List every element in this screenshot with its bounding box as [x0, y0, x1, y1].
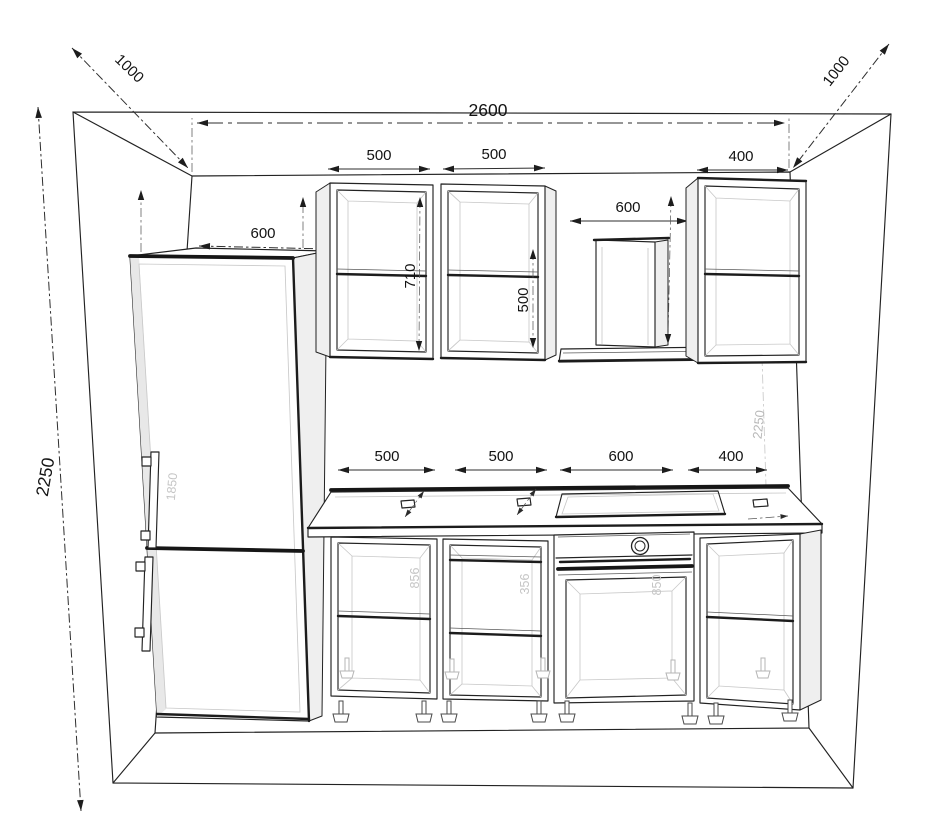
leg	[708, 703, 724, 724]
dimension-upper-cabinet-3-width: 400	[697, 148, 788, 170]
dim-extension-fridge	[141, 192, 303, 252]
base-cabinet-4	[700, 530, 821, 710]
fridge-top-edge	[130, 256, 293, 258]
hood-chimney-side	[655, 240, 668, 347]
dimension-fridge-width: 600	[138, 190, 328, 252]
dim-base-4-label: 400	[718, 448, 743, 465]
dimension-depth-left: 1000	[72, 48, 188, 168]
hood-chimney-top-edge	[594, 238, 669, 240]
dim-extension-lines-room-width	[192, 118, 789, 172]
dim-upper-2-height-label: 500	[515, 287, 532, 312]
dim-upper-2-label: 500	[481, 146, 506, 163]
oven-cabinet-ghost-label: 850	[650, 575, 664, 596]
leg	[531, 701, 547, 722]
kitchen-elevation-drawing: 1000 1000 2600 2250 2250	[0, 0, 943, 833]
dimension-upper-cabinet-1-width: 500	[328, 147, 430, 169]
dimension-base-row: 500 500 600 400	[338, 448, 767, 470]
dim-hood-label: 600	[615, 199, 640, 216]
dim-room-height-right-label: 2250	[750, 409, 768, 439]
oven-knob-inner	[635, 541, 645, 551]
base-cabinet-1-ghost-label: 856	[408, 568, 422, 589]
dim-base-2-label: 500	[488, 448, 513, 465]
upper-cabinet-3	[686, 178, 806, 363]
base-cabinet-2: 356	[443, 539, 548, 701]
leg	[682, 703, 698, 724]
dim-depth-right-label: 1000	[819, 53, 853, 90]
dim-upper-1-height-label: 710	[402, 263, 419, 288]
dimension-upper-cabinet-2-width: 500	[443, 146, 545, 169]
fridge-niche-height-ghost-label: 1850	[164, 472, 180, 501]
dim-extension-arrows	[138, 190, 306, 207]
base-cabinet-4-right-side	[800, 530, 821, 710]
upper-cabinet-3-bottom-edge	[698, 362, 806, 363]
hood-chimney	[596, 240, 655, 347]
dim-base-1-label: 500	[374, 448, 399, 465]
leg	[441, 701, 457, 722]
dim-fridge-width-label: 600	[250, 225, 275, 242]
dimension-room-height-right: 2250	[750, 357, 768, 486]
dim-depth-left-label: 1000	[111, 51, 147, 86]
upper-cabinet-2-right-side	[545, 186, 556, 360]
dimension-room-height-left: 2250	[32, 107, 81, 811]
dim-upper-3-label: 400	[728, 148, 753, 165]
leg	[333, 701, 349, 722]
kitchen-elevation-svg: 1000 1000 2600 2250 2250	[0, 0, 943, 833]
upper-cabinet-2	[441, 184, 556, 360]
fridge-lower-handle	[135, 557, 153, 651]
dim-room-height-left-label: 2250	[32, 456, 59, 498]
leg	[559, 701, 575, 722]
dimension-depth-right: 1000	[793, 44, 889, 168]
dim-base-3-label: 600	[608, 448, 633, 465]
dim-line-upper-2	[443, 168, 545, 169]
upper-cabinet-3-left-side	[686, 178, 698, 363]
dim-upper-1-label: 500	[366, 147, 391, 164]
base-cabinet-4-box	[700, 534, 800, 710]
dim-room-width-label: 2600	[469, 100, 508, 120]
fridge: 1850	[130, 248, 327, 721]
leg	[416, 701, 432, 722]
base-cabinet-2-ghost-label: 356	[518, 574, 532, 595]
fridge-upper-handle	[141, 452, 159, 548]
upper-cabinet-1-left-side	[316, 183, 330, 357]
